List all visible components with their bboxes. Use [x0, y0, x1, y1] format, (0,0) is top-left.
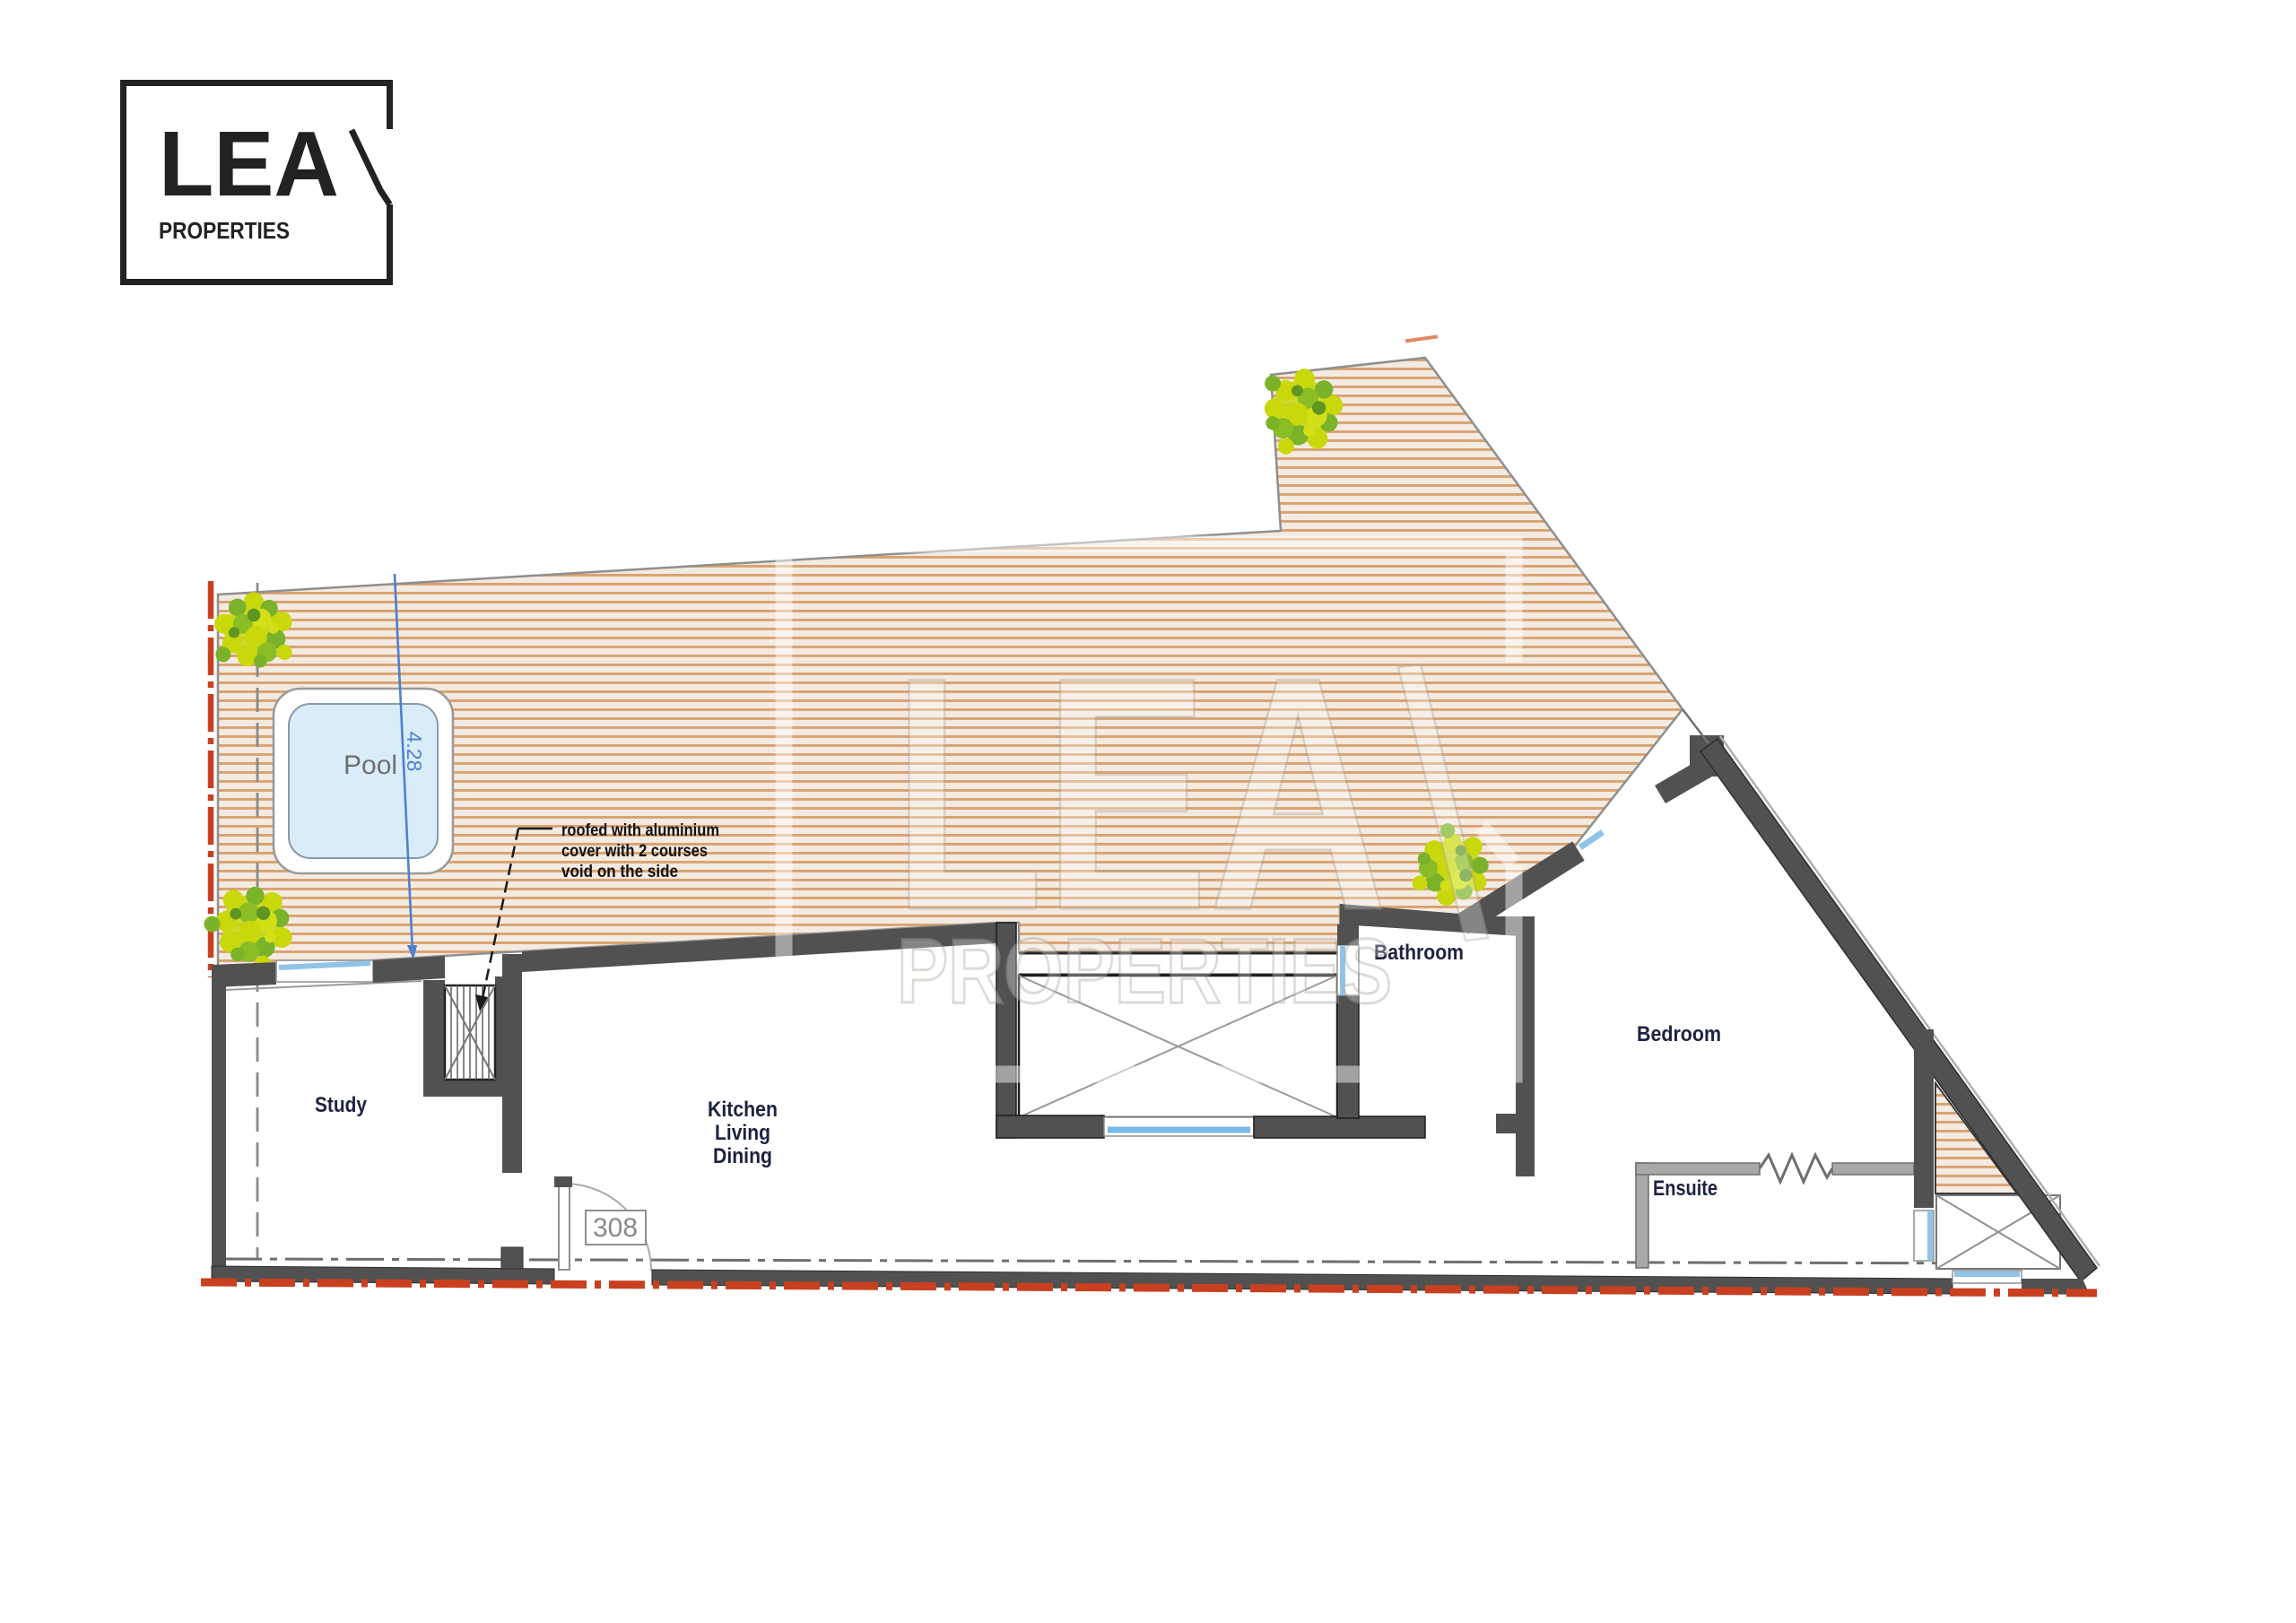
svg-text:Living: Living: [715, 1121, 770, 1145]
svg-text:roofed with aluminium: roofed with aluminium: [561, 821, 719, 840]
svg-text:Pool: Pool: [344, 751, 397, 780]
svg-text:Bedroom: Bedroom: [1637, 1022, 1721, 1046]
svg-text:PROPERTIES: PROPERTIES: [897, 920, 1392, 1022]
svg-text:LEA: LEA: [159, 112, 339, 215]
svg-text:Kitchen: Kitchen: [708, 1098, 778, 1122]
svg-text:4.28: 4.28: [403, 732, 426, 772]
svg-text:Dining: Dining: [713, 1144, 772, 1168]
svg-text:PROPERTIES: PROPERTIES: [159, 219, 290, 244]
svg-text:void on the side: void on the side: [561, 863, 678, 881]
svg-text:Ensuite: Ensuite: [1653, 1176, 1718, 1201]
svg-text:308: 308: [593, 1213, 638, 1243]
svg-text:cover with 2 courses: cover with 2 courses: [561, 842, 708, 861]
svg-text:Study: Study: [315, 1093, 367, 1117]
